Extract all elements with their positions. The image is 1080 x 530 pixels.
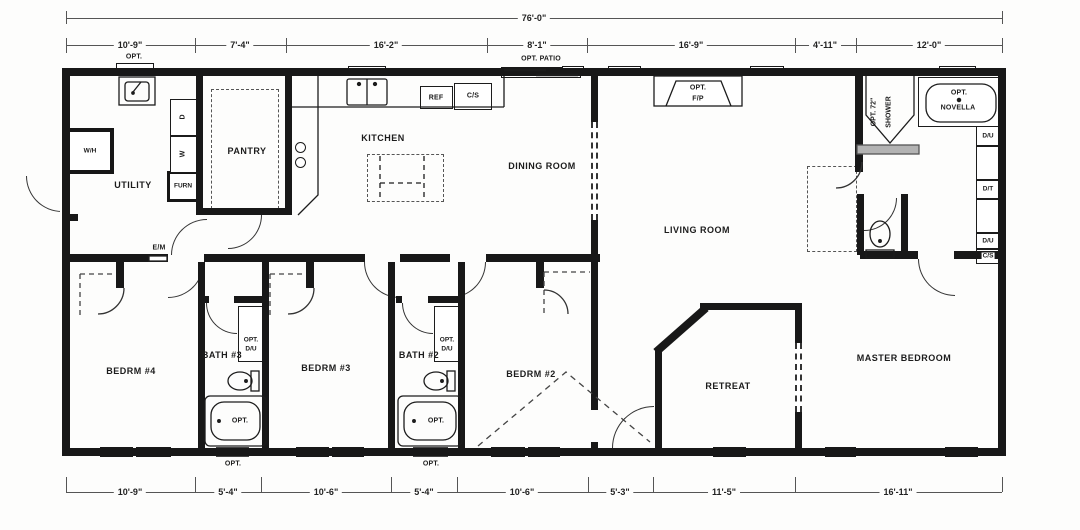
utility-sink-basin xyxy=(125,82,149,101)
bedroom3-closet-door-arc xyxy=(288,288,314,314)
bath3-sink-opt-label: OPT. xyxy=(243,337,259,344)
wall xyxy=(901,194,908,255)
bath2-sink-du-label: D/U xyxy=(440,346,453,353)
bedroom2-closet-door-arc xyxy=(544,290,568,314)
floor-plan: 76'-0" 10'-9" 7'-4" 16'-2" 8'-1" 16'-9" … xyxy=(0,0,1080,530)
du-upper-label: D/U xyxy=(981,133,994,140)
dim-top-0: 10'-9" xyxy=(114,40,146,50)
bath3-tub-opt-label: OPT. xyxy=(232,418,248,425)
wall xyxy=(700,303,802,310)
master-toilet-dot xyxy=(879,240,882,243)
dimension-tick xyxy=(66,477,67,492)
room-label-bedroom2: BEDRM #2 xyxy=(506,369,556,379)
dt-label: D/T xyxy=(982,186,994,193)
room-label-dining: DINING ROOM xyxy=(508,161,576,171)
bedroom2-closet-dashed xyxy=(544,272,590,314)
bath2-sink-opt-label: OPT. xyxy=(439,337,455,344)
shower-sill xyxy=(857,145,919,154)
dim-bottom-2: 10'-6" xyxy=(310,487,342,497)
opt-utility-window-label: OPT. xyxy=(126,54,142,61)
wall xyxy=(62,448,1006,456)
door-swing-arc xyxy=(228,215,262,249)
bath2-tub-drain xyxy=(413,420,416,423)
dim-bottom-4: 10'-6" xyxy=(506,487,538,497)
dimension-tick xyxy=(1002,477,1003,492)
room-label-master: MASTER BEDROOM xyxy=(857,353,952,363)
dim-bottom-3: 5'-4" xyxy=(410,487,437,497)
dim-bottom-5: 5'-3" xyxy=(606,487,633,497)
wall xyxy=(486,254,600,262)
bath2-toilet xyxy=(424,372,448,390)
wall xyxy=(285,76,292,213)
bedroom3-closet-dashed xyxy=(270,274,306,316)
door-swing-arc xyxy=(864,198,897,231)
washer-label: W xyxy=(180,151,187,158)
dimension-tick xyxy=(795,477,796,492)
dimension-tick xyxy=(1002,38,1003,53)
room-label-retreat: RETREAT xyxy=(705,381,750,391)
room-label-utility: UTILITY xyxy=(114,180,152,190)
opt-fireplace-label-1: OPT. xyxy=(690,85,706,92)
optional-wardrobe xyxy=(807,166,857,252)
opt-novella-label-2: NOVELLA xyxy=(941,105,976,112)
door-swing-arc xyxy=(26,176,62,212)
optional-wall-dashed xyxy=(795,343,802,412)
bath2-toilet-dot xyxy=(441,380,444,383)
wall xyxy=(388,262,395,452)
wall xyxy=(116,262,124,288)
opt-novella-label-1: OPT. xyxy=(951,90,967,97)
bath3-toilet-tank xyxy=(251,371,259,391)
master-sink-cabinet-2 xyxy=(976,199,1000,233)
wall xyxy=(62,254,168,262)
door-swing-arc xyxy=(450,262,486,298)
dim-top-2: 16'-2" xyxy=(370,40,402,50)
dim-top-6: 12'-0" xyxy=(913,40,945,50)
wall xyxy=(855,76,863,172)
wall xyxy=(428,296,461,303)
opt-fireplace-label-2: F/P xyxy=(692,96,704,103)
kitchen-faucet-icon xyxy=(374,83,377,86)
bath3-sink-du-label: D/U xyxy=(244,346,257,353)
bath2-toilet-tank xyxy=(447,371,455,391)
dimension-tick xyxy=(195,477,196,492)
wall xyxy=(860,251,918,259)
room-label-kitchen: KITCHEN xyxy=(361,133,405,143)
elec-meter-label: E/M xyxy=(152,245,165,252)
wall xyxy=(591,76,598,122)
bath2-window-opt-label: OPT. xyxy=(423,461,439,468)
dimension-tick xyxy=(391,477,392,492)
bath2-tub-opt-label: OPT. xyxy=(428,418,444,425)
door-swing-arc xyxy=(918,259,955,296)
dim-bottom-7: 16'-11" xyxy=(880,487,917,497)
wall xyxy=(196,76,203,213)
bath3-toilet xyxy=(228,372,252,390)
dimension-tick xyxy=(653,477,654,492)
wall xyxy=(396,296,402,303)
water-heater-label: W/H xyxy=(83,148,98,155)
range-burner-2 xyxy=(295,157,306,168)
bedroom4-closet-dashed xyxy=(80,274,116,316)
ref-label: REF xyxy=(429,95,444,102)
opt-shower-label-1: OPT. 72" xyxy=(871,98,878,127)
dimension-tick xyxy=(457,477,458,492)
wall xyxy=(196,208,292,215)
utility-sink-faucet-icon xyxy=(133,82,141,92)
utility-sink-drain-icon xyxy=(132,92,134,94)
master-sink-cabinet-1 xyxy=(976,146,1000,180)
dimension-tick xyxy=(1002,11,1003,24)
dim-bottom-1: 5'-4" xyxy=(214,487,241,497)
dim-bottom-6: 11'-5" xyxy=(708,487,740,497)
wall xyxy=(62,68,70,456)
dim-top-3: 8'-1" xyxy=(523,40,550,50)
optional-wall-dashed xyxy=(591,122,598,220)
room-label-bedroom4: BEDRM #4 xyxy=(106,366,156,376)
wall xyxy=(204,254,365,262)
dim-top-1: 7'-4" xyxy=(226,40,253,50)
wall xyxy=(62,68,1006,76)
room-label-bath3: BATH #3 xyxy=(202,350,242,360)
dim-top-4: 16'-9" xyxy=(675,40,707,50)
range-burner-1 xyxy=(295,142,306,153)
wall xyxy=(857,194,864,255)
room-label-bath2: BATH #2 xyxy=(399,350,439,360)
wall xyxy=(306,262,314,288)
novella-tub-deck xyxy=(918,77,1002,127)
wall xyxy=(795,412,802,452)
wall xyxy=(536,262,544,288)
door-swing-arc xyxy=(402,303,433,334)
kitchen-sink xyxy=(347,79,387,105)
dryer-label: D xyxy=(180,114,187,119)
cs-kitchen-label: C/S xyxy=(467,93,479,100)
kitchen-island-optional xyxy=(367,154,444,202)
opt-shower-label-2: SHOWER xyxy=(886,96,893,128)
kitchen-faucet-icon xyxy=(358,83,361,86)
wall xyxy=(262,262,269,452)
room-label-bedroom3: BEDRM #3 xyxy=(301,363,351,373)
bath3-window-opt-label: OPT. xyxy=(225,461,241,468)
room-label-living: LIVING ROOM xyxy=(664,225,730,235)
door-swing-arc xyxy=(171,219,207,255)
bedroom4-closet-door-arc xyxy=(98,288,124,314)
du-lower-label: D/U xyxy=(981,238,994,245)
bath3-toilet-dot xyxy=(245,380,248,383)
wall xyxy=(655,348,662,452)
opt-patio-label: OPT. PATIO xyxy=(521,56,561,63)
wall xyxy=(458,262,465,452)
dim-bottom-0: 10'-9" xyxy=(114,487,146,497)
wall xyxy=(591,220,598,410)
dimension-tick xyxy=(588,477,589,492)
wall xyxy=(400,254,450,262)
wall xyxy=(998,68,1006,456)
door-swing-arc xyxy=(612,406,654,448)
wall xyxy=(234,296,265,303)
retreat-angled-wall xyxy=(656,308,706,352)
bath3-tub-drain xyxy=(218,420,221,423)
door-swing-arc xyxy=(206,303,237,334)
dim-overall-width: 76'-0" xyxy=(518,13,550,23)
dim-top-5: 4'-11" xyxy=(809,40,841,50)
utility-sink xyxy=(119,77,155,105)
room-label-pantry: PANTRY xyxy=(228,146,267,156)
dimension-tick xyxy=(261,477,262,492)
cs-master-label: C/S xyxy=(982,253,995,260)
furnace-label: FURN xyxy=(173,183,193,190)
